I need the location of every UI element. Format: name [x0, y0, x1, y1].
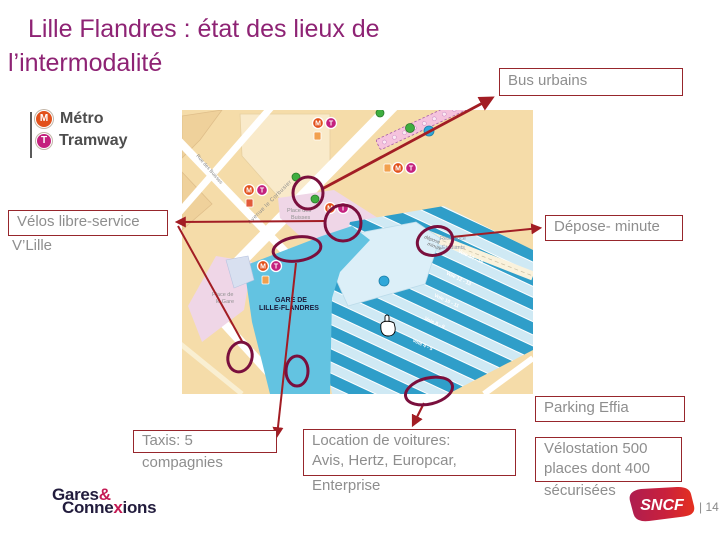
callout-velostation: Vélostation 500 places dont 400: [535, 437, 682, 482]
gares-connexions-logo: Gares& Connexions: [52, 487, 156, 515]
callout-depose-minute-label: Dépose- minute: [554, 218, 660, 235]
svg-text:M: M: [395, 166, 401, 173]
callout-velostation-line2: places dont 400: [544, 459, 673, 479]
callout-velos-label: Vélos libre-service: [17, 213, 140, 230]
callout-bus-urbains-label: Bus urbains: [508, 72, 587, 89]
callout-bus-urbains: Bus urbains: [499, 68, 683, 96]
legend: M Métro T Tramway: [30, 110, 127, 154]
gc-conne: Conne: [62, 498, 113, 517]
legend-tram-label: Tramway: [59, 132, 127, 150]
callout-parking-effia: Parking Effia: [535, 396, 685, 422]
connector-location: [413, 403, 424, 425]
station-name-line2: LILLE-FLANDRES: [259, 305, 319, 312]
callout-velostation-overflow: sécurisées: [544, 481, 616, 501]
callout-location: Location de voitures: Avis, Hertz, Europ…: [303, 429, 516, 476]
svg-text:M: M: [260, 264, 266, 271]
svg-text:T: T: [409, 166, 414, 173]
gares-connexions-line2: Connexions: [52, 500, 156, 515]
svg-text:T: T: [341, 206, 346, 213]
callout-velostation-line1: Vélostation 500: [544, 439, 673, 459]
legend-metro-label: Métro: [60, 110, 104, 128]
gc-x: x: [113, 498, 122, 517]
sncf-logo-text: SNCF: [640, 497, 685, 514]
svg-text:M: M: [315, 121, 321, 128]
svg-text:M: M: [327, 206, 333, 213]
place-gare-label1: Place de: [212, 292, 233, 298]
callout-location-overflow: Enterprise: [312, 476, 380, 496]
svg-text:M: M: [246, 188, 252, 195]
svg-text:T: T: [329, 121, 334, 128]
callout-location-line1: Location de voitures:: [312, 431, 507, 451]
station-name-line1: GARE DE: [275, 297, 307, 304]
page-number: | 14: [699, 500, 719, 514]
callout-parking-effia-label: Parking Effia: [544, 399, 629, 416]
place-buisses-label2: Buisses: [291, 215, 311, 221]
tramway-icon: T: [36, 133, 52, 149]
page-title: Lille Flandres : état des lieux de l’int…: [8, 12, 528, 80]
place-gare-label2: le Gare: [216, 299, 234, 305]
residence-label2: Étudiants: [442, 244, 465, 251]
page-title-line2: l’intermodalité: [8, 46, 528, 80]
legend-row-tram: T Tramway: [35, 132, 127, 149]
callout-location-line2: Avis, Hertz, Europcar,: [312, 451, 507, 471]
callout-taxis-overflow: compagnies: [142, 453, 223, 473]
sncf-logo: SNCF: [624, 485, 698, 525]
residence-label1: Résidence: [440, 236, 466, 242]
legend-divider: [30, 112, 32, 158]
mt-icon-pair: M T: [384, 163, 417, 174]
station-map: Voie 14 - 16 Voie 12 - 13 Voie 10 - 11 V…: [182, 110, 533, 394]
station-map-art: Voie 14 - 16 Voie 12 - 13 Voie 10 - 11 V…: [182, 110, 533, 394]
legend-row-metro: M Métro: [35, 110, 127, 127]
callout-depose-minute: Dépose- minute: [545, 215, 683, 241]
callout-velos: Vélos libre-service: [8, 210, 168, 236]
svg-text:T: T: [260, 188, 265, 195]
callout-velos-overflow: V’Lille: [12, 236, 52, 256]
gc-ions: ions: [123, 498, 157, 517]
place-buisses-label1: Place des: [287, 208, 311, 214]
svg-text:T: T: [274, 264, 279, 271]
callout-taxis-label: Taxis: 5: [142, 432, 193, 449]
callout-taxis: Taxis: 5: [133, 430, 277, 453]
metro-icon: M: [35, 110, 53, 128]
page-title-line1: Lille Flandres : état des lieux de: [8, 12, 528, 46]
